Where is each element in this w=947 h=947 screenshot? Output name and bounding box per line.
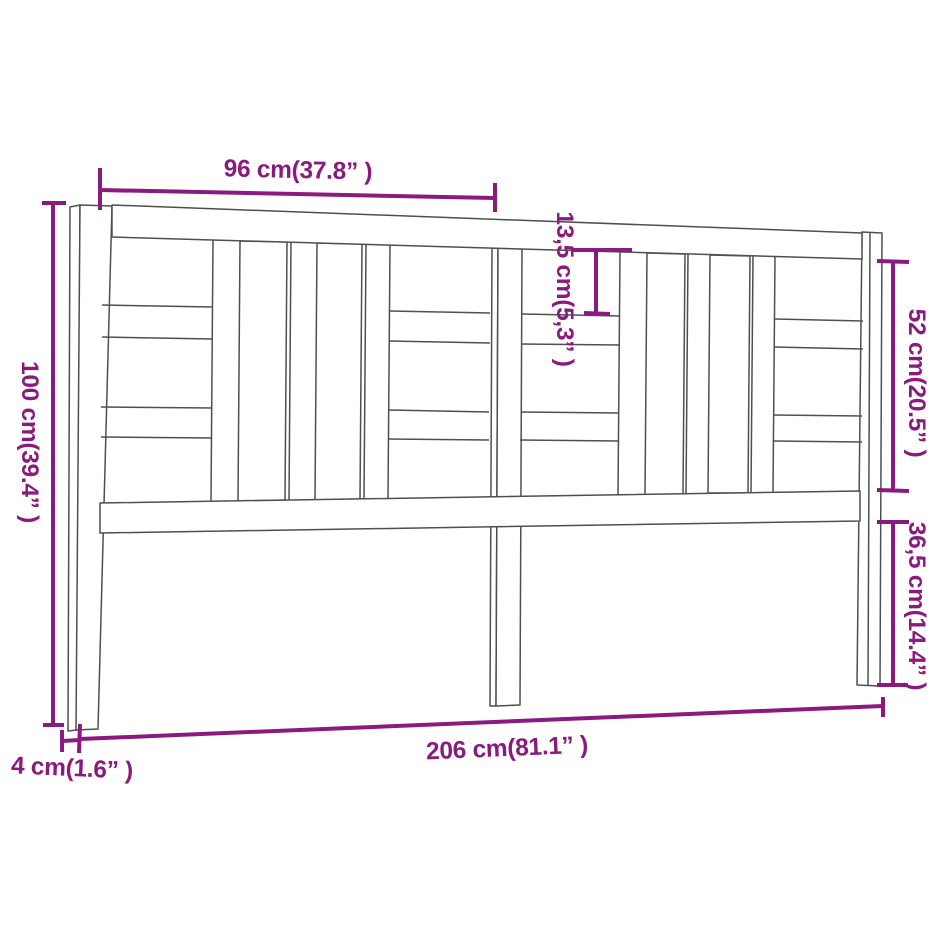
headboard-dimension-diagram: 96 cm(37.8” ) 100 cm(39.4” ) 13,5 cm(5,3… (0, 0, 947, 947)
label-panel-section-height: 52 cm(20.5” ) (903, 309, 930, 458)
diagram-background (0, 0, 947, 947)
label-frame-thickness: 4 cm(1.6” ) (10, 752, 133, 785)
label-top-section-width: 96 cm(37.8” ) (223, 155, 372, 185)
product-dimension-image: 96 cm(37.8” ) 100 cm(39.4” ) 13,5 cm(5,3… (0, 0, 947, 947)
label-overall-height: 100 cm(39.4” ) (16, 361, 43, 523)
center-leg (490, 248, 522, 706)
label-slat-board-height: 13,5 cm(5,3” ) (551, 211, 578, 366)
label-leg-section-height: 36,5 cm(14.4” ) (903, 522, 930, 690)
right-leg (857, 232, 882, 686)
